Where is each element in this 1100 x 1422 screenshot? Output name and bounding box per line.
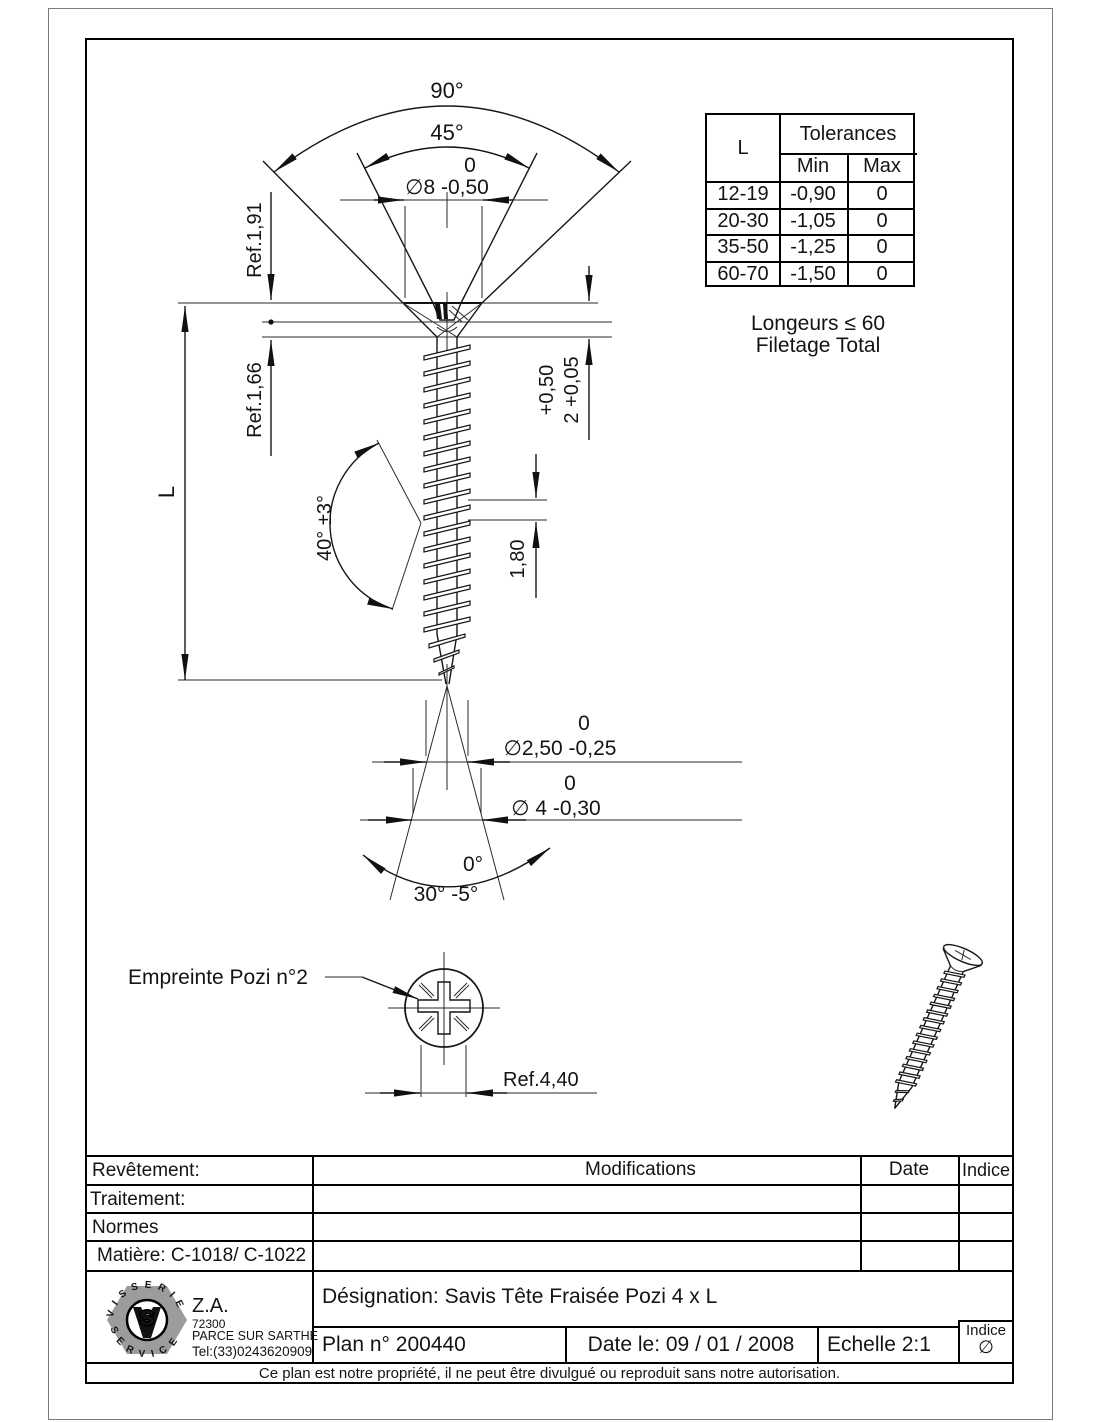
- dim-head-height: +0,50 2 +0,05: [536, 266, 589, 440]
- field-revetement: Revêtement:: [92, 1160, 200, 1182]
- dim-thread-angle: 40° ±3°: [314, 440, 421, 610]
- thread-crest: [424, 601, 470, 616]
- thread-crest: [424, 617, 470, 632]
- thread-crest: [916, 1029, 937, 1044]
- pozi-recess-top-view: Empreinte Pozi n°2 Ref.4,40: [128, 952, 597, 1097]
- thread-crest: [930, 998, 951, 1013]
- dim-dia4-label: ∅ 4 -0,30: [511, 797, 601, 820]
- table-cell: 0: [847, 236, 917, 259]
- table-cell: -1,25: [779, 236, 847, 259]
- table-cell: 0: [847, 263, 917, 286]
- indice-header: Indice: [958, 1160, 1014, 1181]
- dim-head-height-label: 2 +0,05: [561, 356, 583, 423]
- thread-crest: [902, 1060, 923, 1075]
- thread-crest: [927, 1006, 948, 1021]
- logo-tel-text: Tel:(33)0243620909: [192, 1344, 312, 1359]
- table-cell: 60-70: [707, 263, 779, 286]
- tolerance-table-col-l: L: [707, 137, 779, 160]
- dim-dia4-upper-tol: 0: [564, 772, 576, 795]
- field-traitement: Traitement:: [90, 1189, 185, 1211]
- table-cell: 20-30: [707, 210, 779, 233]
- designation-field: Désignation: Savis Tête Fraisée Pozi 4 x…: [322, 1285, 717, 1309]
- thread-crest: [940, 975, 961, 990]
- dim-dia25-label: ∅2,50 -0,25: [504, 737, 617, 760]
- dim-angle-45-label: 45°: [430, 120, 463, 145]
- thread-crest: [923, 1014, 944, 1029]
- thread-crest: [424, 521, 470, 536]
- thread-crest: [424, 441, 470, 456]
- dim-dia25-upper-tol: 0: [578, 712, 590, 735]
- title-block-line: [85, 1212, 1014, 1214]
- logo-city-text: PARCE SUR SARTHE: [192, 1329, 318, 1343]
- note-line2: Filetage Total: [756, 334, 881, 357]
- title-block-line: [85, 1362, 1014, 1364]
- indice-cell-value: ∅: [958, 1337, 1014, 1358]
- dim-dia8-upper-tol: 0: [464, 154, 476, 177]
- thread-crest: [424, 409, 470, 424]
- title-block-line: [85, 1270, 1014, 1272]
- logo-za-text: Z.A.: [192, 1295, 229, 1318]
- dim-pitch-label: 1,80: [507, 540, 529, 579]
- pozi-callout-label: Empreinte Pozi n°2: [128, 966, 308, 989]
- table-cell: -1,05: [779, 210, 847, 233]
- thread-crest: [424, 457, 470, 472]
- dim-ref166-label: Ref.1,66: [244, 362, 266, 438]
- thread-crest: [424, 473, 470, 488]
- tolerance-table-min-header: Min: [779, 155, 847, 178]
- thread-crest: [424, 505, 470, 520]
- thread-crest: [424, 393, 470, 408]
- thread-crest: [937, 982, 958, 997]
- plan-number-field: Plan n° 200440: [322, 1333, 466, 1357]
- thread-crest: [909, 1045, 930, 1060]
- dim-tip-angle-label: 30° -5°: [414, 883, 479, 906]
- thread-crest: [424, 361, 470, 376]
- modifications-header: Modifications: [585, 1159, 696, 1181]
- property-notice: Ce plan est notre propriété, il ne peut …: [85, 1365, 1014, 1382]
- table-cell: 0: [847, 183, 917, 206]
- dim-tip-angle-upper-tol: 0°: [463, 853, 483, 876]
- thread-crest: [934, 990, 955, 1005]
- field-normes: Normes: [92, 1217, 159, 1239]
- dim-left-references: Ref.1,91 Ref.1,66 L: [154, 192, 612, 680]
- logo-s-monogram: S: [140, 1307, 154, 1330]
- dim-head-height-upper-tol: +0,50: [536, 365, 558, 416]
- thread-crest: [424, 537, 470, 552]
- thread-crest: [424, 569, 470, 584]
- dim-pozi-ref-label: Ref.4,40: [503, 1069, 579, 1091]
- tolerance-table: L Tolerances Min Max 12-19 -0,90 0 20-30…: [705, 113, 915, 287]
- title-block-line: [85, 1240, 1014, 1242]
- thread-crest: [906, 1052, 927, 1067]
- thread-bands: [424, 345, 470, 632]
- thread-crest: [424, 553, 470, 568]
- date-header: Date: [860, 1159, 958, 1181]
- thread-crest: [920, 1021, 941, 1036]
- table-cell: -1,50: [779, 263, 847, 286]
- title-block-line: [817, 1326, 819, 1362]
- note-line1: Longeurs ≤ 60: [751, 312, 885, 335]
- thread-crest: [913, 1037, 934, 1052]
- tolerance-table-title: Tolerances: [779, 123, 917, 146]
- thread-crest: [424, 377, 470, 392]
- dim-thread-pitch: 1,80: [468, 454, 547, 598]
- title-block-line: [85, 1184, 1014, 1186]
- table-cell: 0: [847, 210, 917, 233]
- thread-crest: [899, 1068, 920, 1083]
- screw-3d-view: [875, 941, 984, 1117]
- table-cell: 12-19: [707, 183, 779, 206]
- tolerance-table-max-header: Max: [847, 155, 917, 178]
- scale-field: Echelle 2:1: [827, 1333, 931, 1357]
- field-matiere: Matière: C-1018/ C-1022: [97, 1245, 306, 1267]
- dim-ref191-label: Ref.1,91: [244, 202, 266, 278]
- dim-length-L-label: L: [154, 486, 179, 498]
- dim-thread-angle-label: 40° ±3°: [314, 495, 336, 561]
- thread-crest: [424, 425, 470, 440]
- thread-crest: [424, 489, 470, 504]
- title-block-line: [85, 1155, 1014, 1157]
- visserie-service-logo: S VISSERIE SERVICE: [105, 1280, 188, 1361]
- table-cell: -0,90: [779, 183, 847, 206]
- thread-bands-3d: [895, 967, 965, 1090]
- table-cell: 35-50: [707, 236, 779, 259]
- dim-tip: 0 ∅2,50 -0,25 0 ∅ 4 -0,30 0° 30° -5°: [360, 664, 742, 906]
- thread-crest: [424, 585, 470, 600]
- date-field: Date le: 09 / 01 / 2008: [565, 1333, 817, 1357]
- dim-angle-90-label: 90°: [430, 78, 463, 103]
- thread-length-note: Longeurs ≤ 60 Filetage Total: [751, 312, 885, 357]
- title-block-line: [312, 1326, 958, 1328]
- dim-head-diameter: 0 ∅8 -0,50: [340, 154, 548, 298]
